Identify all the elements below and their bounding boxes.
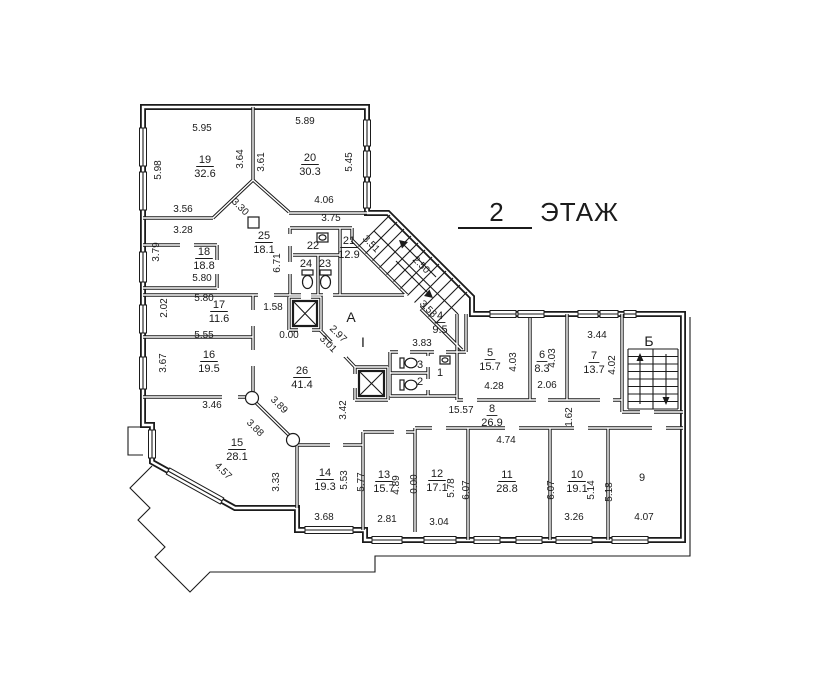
elevator-2 xyxy=(359,371,384,396)
dimension-label: 15.57 xyxy=(448,405,473,416)
dimension-label: 5.78 xyxy=(446,478,457,498)
dimension-label: 3.26 xyxy=(564,512,584,523)
dimension-label: 6.07 xyxy=(461,480,472,500)
room-area: 11.6 xyxy=(209,313,230,325)
dimension-label: 3.75 xyxy=(321,213,341,224)
dimension-label: 3.61 xyxy=(256,152,267,172)
staircase-b xyxy=(628,349,678,409)
dimension-label: 3.88 xyxy=(244,417,266,439)
dimension-label: 0.00 xyxy=(409,474,420,494)
room-area: 26.9 xyxy=(481,417,502,429)
room-area: 9.5 xyxy=(432,324,447,336)
room-number: 24 xyxy=(300,258,312,270)
dimension-label: 4.03 xyxy=(508,352,519,372)
room-number: 13 xyxy=(378,469,390,481)
dimension-label: 6.07 xyxy=(546,480,557,500)
room-number: 10 xyxy=(571,469,583,481)
room-area: 41.4 xyxy=(291,379,312,391)
dimension-label: 3.58 xyxy=(417,298,439,320)
dimension-label: 1.62 xyxy=(564,407,575,427)
dimension-label: 4.02 xyxy=(607,355,618,375)
dimension-label: 3.44 xyxy=(587,330,607,341)
dimension-label: 5.14 xyxy=(586,480,597,500)
room-area: 19.1 xyxy=(566,483,587,495)
room-number: 6 xyxy=(539,349,545,361)
room-number: 8 xyxy=(489,403,495,415)
dimension-label: 5.45 xyxy=(344,152,355,172)
plan-labels-layer: 1932.62030.32518.11818.81711.61619.51528… xyxy=(151,116,654,528)
dimension-label: 5.18 xyxy=(604,482,615,502)
dimension-label: 5.95 xyxy=(192,123,212,134)
dimension-label: 5.80 xyxy=(192,273,212,284)
dimension-label: 4.28 xyxy=(484,381,504,392)
room-number: 23 xyxy=(319,258,331,270)
dimension-label: 6.71 xyxy=(272,253,283,273)
dimension-label: 3.56 xyxy=(173,204,193,215)
room-number: 18 xyxy=(198,246,210,258)
room-number: 2 xyxy=(417,376,423,388)
dimension-label: 3.04 xyxy=(429,517,449,528)
room-number: 7 xyxy=(591,350,597,362)
dimension-label: 4.07 xyxy=(634,512,654,523)
stair-letter-mark: I xyxy=(361,334,365,350)
room-number: 12 xyxy=(431,468,443,480)
floor-word: ЭТАЖ xyxy=(540,197,619,227)
dimension-label: 5.77 xyxy=(356,472,367,492)
dimension-label: 5.98 xyxy=(153,160,164,180)
dimension-label: 2.06 xyxy=(537,380,557,391)
dimension-label: 3.28 xyxy=(173,225,193,236)
dimension-label: 5.55 xyxy=(194,330,214,341)
dimension-label: 4.89 xyxy=(391,475,402,495)
floor-number: 2 xyxy=(489,197,504,227)
stair-letter-mark: А xyxy=(346,309,356,325)
dimension-label: 3.46 xyxy=(202,400,222,411)
dimension-label: 2.81 xyxy=(377,514,397,525)
dimension-label: 4.74 xyxy=(496,435,516,446)
room-area: 18.8 xyxy=(193,260,214,272)
elevator-1 xyxy=(293,301,317,326)
room-number: 11 xyxy=(501,469,512,481)
room-area: 32.6 xyxy=(194,168,215,180)
dimension-label: 5.89 xyxy=(295,116,315,127)
dimension-label: 0.00 xyxy=(279,330,299,341)
room-area: 15.7 xyxy=(479,361,500,373)
room-number: 15 xyxy=(231,437,243,449)
dimension-label: 3.64 xyxy=(235,149,246,169)
room-number: 21 xyxy=(343,235,355,247)
room-number: 22 xyxy=(307,240,319,252)
room-area: 17.1 xyxy=(426,482,447,494)
dimension-label: 5.53 xyxy=(339,470,350,490)
room-area: 30.3 xyxy=(299,166,320,178)
room-number: 3 xyxy=(417,359,423,371)
room-number: 25 xyxy=(258,230,270,242)
floor-title: 2 ЭТАЖ xyxy=(458,197,619,228)
room-area: 19.5 xyxy=(198,363,219,375)
floor-plan-page: 2 ЭТАЖ 1932.62030.32518.11818.81711.6161… xyxy=(0,0,833,682)
room-number: 9 xyxy=(639,472,645,484)
dimension-label: 3.30 xyxy=(229,196,251,218)
room-area: 12.9 xyxy=(338,249,359,261)
room-area: 19.3 xyxy=(314,481,335,493)
room-number: 26 xyxy=(296,365,308,377)
room-number: 1 xyxy=(437,367,443,379)
room-number: 20 xyxy=(304,152,316,164)
room-area: 28.1 xyxy=(226,451,247,463)
room-number: 5 xyxy=(487,347,493,359)
dimension-label: 4.06 xyxy=(314,195,334,206)
room-number: 14 xyxy=(319,467,331,479)
dimension-label: 3.89 xyxy=(268,394,290,416)
room-area: 28.8 xyxy=(496,483,517,495)
room-area: 13.7 xyxy=(583,364,604,376)
dimension-label: 3.33 xyxy=(271,472,282,492)
dimension-label: 3.83 xyxy=(412,338,432,349)
dimension-label: 3.67 xyxy=(158,353,169,373)
dimension-label: 3.42 xyxy=(338,400,349,420)
dimension-label: 4.57 xyxy=(212,460,234,482)
room-number: 19 xyxy=(199,154,211,166)
dimension-label: 1.58 xyxy=(263,302,283,313)
dimension-label: 3.79 xyxy=(151,242,162,262)
room-number: 17 xyxy=(213,299,225,311)
stair-letter-mark: Б xyxy=(644,333,653,349)
floor-plan-svg: 2 ЭТАЖ 1932.62030.32518.11818.81711.6161… xyxy=(0,0,833,682)
room-number: 16 xyxy=(203,349,215,361)
dimension-label: 3.68 xyxy=(314,512,334,523)
dimension-label: 5.80 xyxy=(194,293,214,304)
dimension-label: 4.03 xyxy=(547,348,558,368)
dimension-label: 2.02 xyxy=(159,298,170,318)
